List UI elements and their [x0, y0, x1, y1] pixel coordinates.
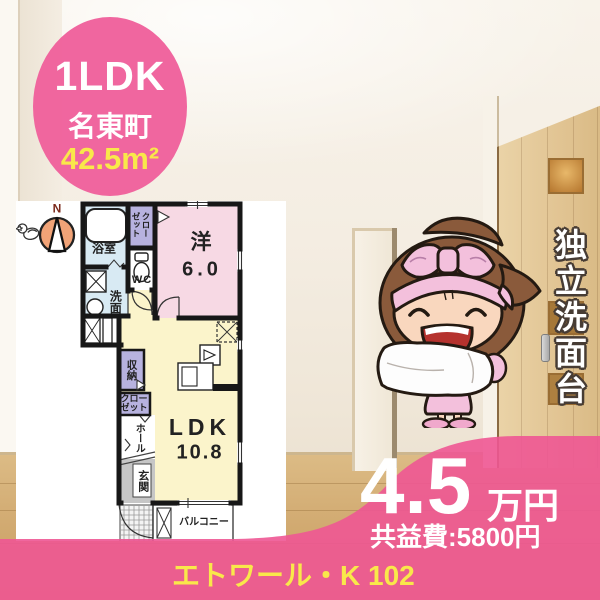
property-name: エトワール・K 102 [172, 554, 415, 594]
real-estate-listing-image: N 浴室 クローゼット WC 洗面 洋 6.0 収納 クローゼット ホール 玄関… [0, 0, 600, 600]
common-fee: 共益費:5800円 [370, 517, 541, 554]
rent-value: 4.5 [360, 446, 471, 526]
